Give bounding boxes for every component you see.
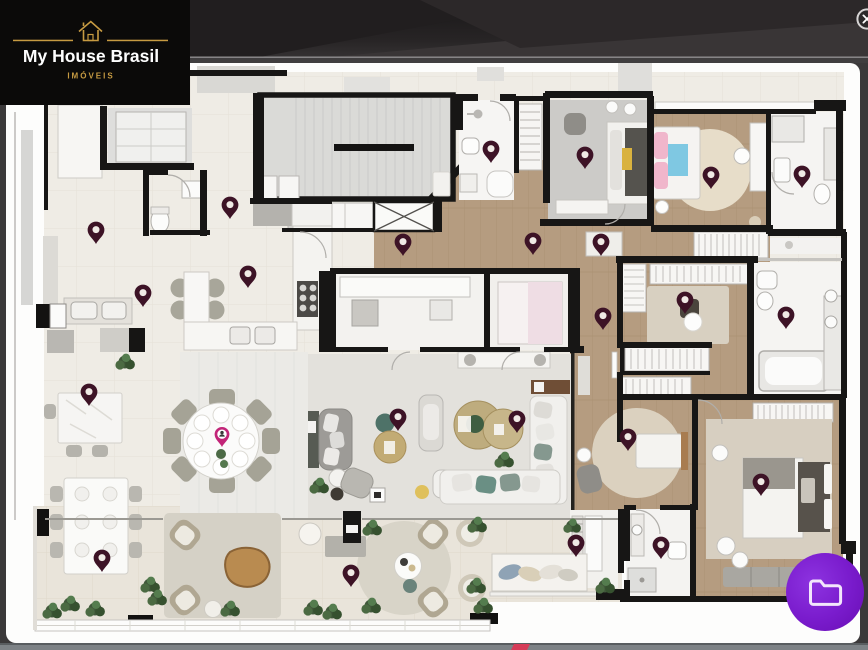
svg-text:My House Brasil: My House Brasil xyxy=(23,46,159,66)
svg-text:IMÓVEIS: IMÓVEIS xyxy=(67,72,114,81)
